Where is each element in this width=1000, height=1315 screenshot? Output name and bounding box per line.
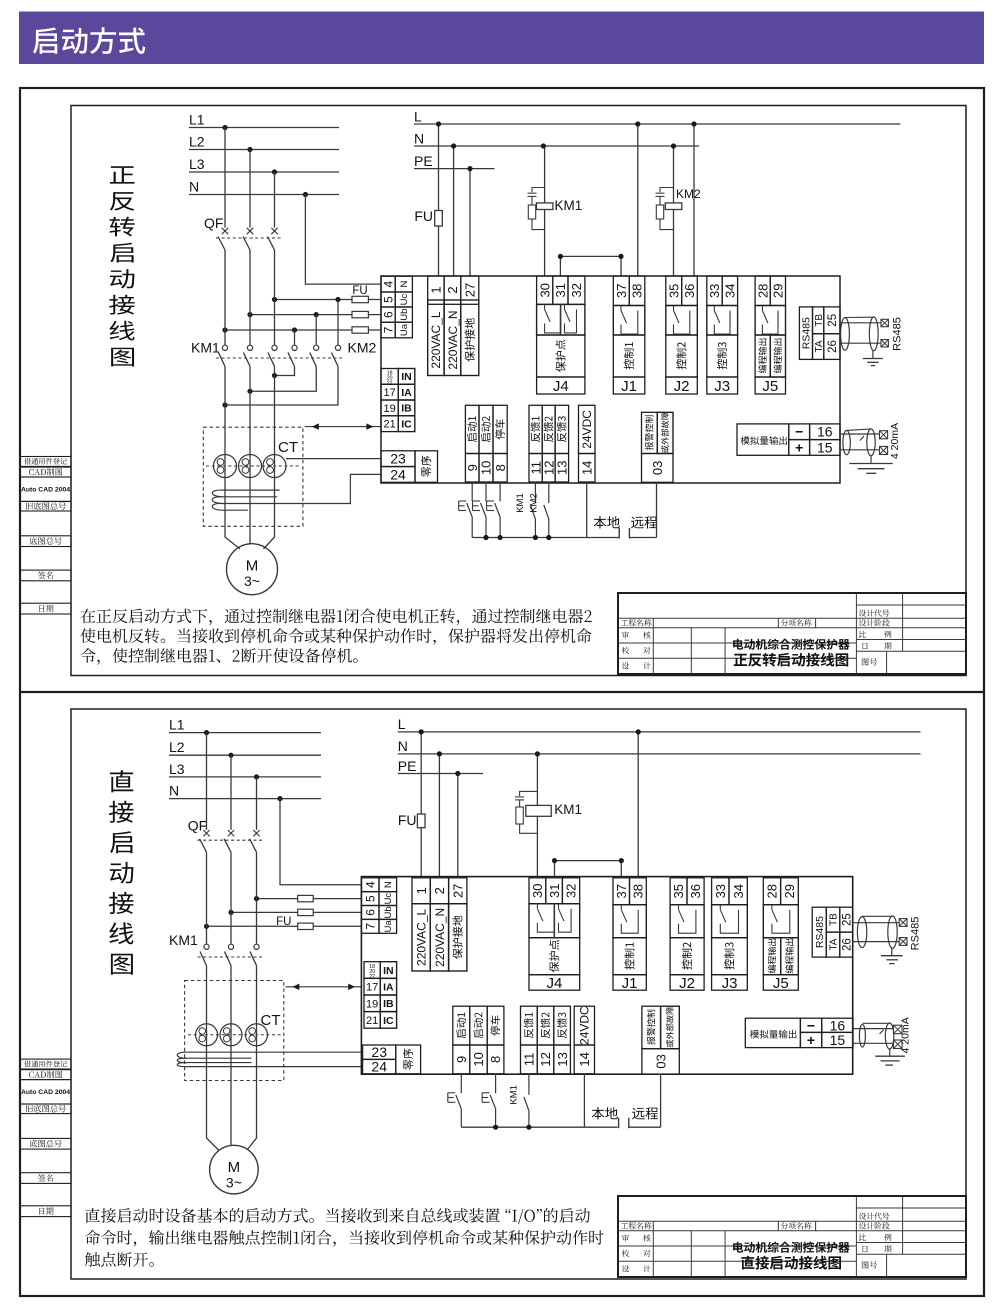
svg-text:L3: L3 [189, 156, 205, 172]
svg-text:J1: J1 [621, 378, 637, 395]
svg-text:29: 29 [771, 284, 786, 298]
svg-text:22: 22 [387, 380, 393, 386]
svg-text:220VAC_N: 220VAC_N [446, 310, 460, 369]
svg-text:L: L [414, 109, 422, 125]
svg-text:35: 35 [671, 884, 686, 898]
svg-text:J2: J2 [674, 378, 690, 395]
svg-text:−: − [807, 1017, 815, 1033]
svg-text:N: N [383, 881, 394, 888]
svg-text:21: 21 [366, 1015, 378, 1027]
svg-text:24VDC: 24VDC [580, 410, 594, 449]
svg-text:L2: L2 [169, 739, 185, 755]
svg-text:12: 12 [538, 1052, 553, 1066]
svg-text:IB: IB [401, 403, 412, 415]
svg-text:KM1: KM1 [515, 493, 526, 513]
svg-text:IA: IA [401, 387, 412, 399]
svg-text:3~: 3~ [226, 1175, 242, 1191]
svg-text:25: 25 [827, 314, 839, 327]
svg-text:15: 15 [830, 1032, 846, 1048]
svg-text:M: M [246, 558, 259, 575]
svg-text:33: 33 [707, 284, 722, 298]
svg-text:L: L [398, 716, 406, 732]
svg-text:24: 24 [390, 466, 406, 482]
svg-text:36: 36 [688, 884, 703, 898]
svg-text:Ub: Ub [383, 906, 394, 918]
svg-text:3~: 3~ [244, 573, 260, 589]
svg-text:QF: QF [204, 215, 223, 231]
svg-text:RS485: RS485 [801, 317, 813, 349]
svg-text:19: 19 [383, 403, 395, 415]
svg-text:Ub: Ub [399, 309, 410, 321]
svg-text:26: 26 [827, 340, 839, 353]
svg-text:KM2: KM2 [348, 340, 377, 356]
svg-text:220VAC_L: 220VAC_L [415, 908, 429, 965]
svg-text:IC: IC [401, 418, 412, 430]
svg-text:1: 1 [429, 286, 444, 293]
svg-text:28: 28 [765, 884, 780, 898]
svg-text:Auto CAD 2004: Auto CAD 2004 [21, 1089, 70, 1096]
svg-text:−: − [795, 424, 803, 440]
svg-text:220VAC_N: 220VAC_N [433, 908, 447, 967]
svg-text:L1: L1 [189, 112, 205, 128]
svg-text:Auto CAD 2004: Auto CAD 2004 [21, 487, 70, 494]
svg-text:34: 34 [723, 284, 738, 298]
svg-text:FU: FU [414, 208, 433, 224]
svg-text:9: 9 [454, 1056, 469, 1063]
svg-text:IN: IN [401, 371, 412, 383]
svg-text:CT: CT [278, 439, 298, 456]
svg-text:J3: J3 [722, 975, 738, 992]
svg-text:PE: PE [414, 153, 433, 169]
svg-text:10: 10 [479, 461, 494, 475]
svg-text:17: 17 [366, 982, 378, 994]
svg-text:6: 6 [364, 909, 378, 916]
svg-text:03: 03 [650, 461, 665, 475]
svg-text:7: 7 [381, 326, 395, 333]
svg-text:+: + [807, 1032, 815, 1048]
svg-text:Uc: Uc [383, 893, 394, 905]
svg-text:IN: IN [383, 965, 394, 977]
svg-text:N: N [398, 738, 408, 754]
svg-text:J3: J3 [714, 378, 730, 395]
svg-text:36: 36 [682, 284, 697, 298]
svg-text:10: 10 [471, 1052, 486, 1066]
svg-text:31: 31 [547, 884, 562, 898]
svg-text:5: 5 [381, 296, 395, 303]
svg-text:IA: IA [383, 982, 394, 994]
svg-text:23: 23 [390, 451, 406, 467]
svg-text:L2: L2 [189, 134, 205, 150]
svg-text:J2: J2 [679, 975, 695, 992]
svg-text:PE: PE [398, 758, 417, 774]
svg-text:24VDC: 24VDC [578, 1006, 592, 1045]
svg-text:19: 19 [366, 998, 378, 1010]
svg-text:FU: FU [398, 812, 417, 828]
svg-text:J5: J5 [762, 378, 778, 395]
svg-text:J4: J4 [546, 975, 562, 992]
svg-text:TB: TB [829, 913, 840, 926]
svg-text:KM2: KM2 [676, 187, 701, 201]
svg-text:RS485: RS485 [892, 317, 904, 351]
svg-text:M: M [228, 1159, 241, 1176]
svg-text:N: N [399, 281, 410, 288]
svg-text:4 20mA: 4 20mA [900, 1017, 912, 1053]
svg-text:KM1: KM1 [555, 198, 583, 213]
svg-text:8: 8 [493, 464, 508, 471]
svg-text:26: 26 [841, 938, 853, 951]
svg-text:Ua: Ua [399, 323, 410, 336]
svg-text:KM1: KM1 [191, 340, 220, 356]
svg-text:RS485: RS485 [814, 916, 826, 948]
svg-text:25: 25 [841, 913, 853, 926]
svg-text:IC: IC [383, 1015, 394, 1027]
svg-text:24: 24 [371, 1059, 387, 1075]
svg-text:IB: IB [383, 998, 394, 1010]
svg-text:29: 29 [782, 884, 797, 898]
svg-text:37: 37 [614, 284, 629, 298]
svg-text:32: 32 [564, 884, 579, 898]
svg-text:L1: L1 [169, 717, 185, 733]
svg-text:13: 13 [555, 461, 570, 475]
svg-text:9: 9 [465, 464, 480, 471]
svg-text:2: 2 [432, 887, 447, 894]
svg-text:14: 14 [577, 1052, 592, 1066]
svg-text:32: 32 [569, 283, 584, 297]
svg-text:Ua: Ua [383, 920, 394, 933]
svg-text:6: 6 [381, 311, 395, 318]
svg-text:2: 2 [445, 286, 460, 293]
svg-text:16: 16 [830, 1017, 846, 1033]
svg-text:TA: TA [829, 938, 840, 950]
svg-text:L3: L3 [169, 761, 185, 777]
svg-text:J5: J5 [773, 975, 789, 992]
svg-text:31: 31 [553, 283, 568, 297]
svg-text:8: 8 [488, 1056, 503, 1063]
svg-text:N: N [414, 131, 424, 147]
svg-text:N: N [189, 179, 199, 195]
svg-text:37: 37 [614, 884, 629, 898]
svg-text:4: 4 [381, 280, 395, 287]
svg-text:38: 38 [631, 884, 646, 898]
svg-text:13: 13 [555, 1052, 570, 1066]
svg-text:KM1: KM1 [169, 932, 198, 948]
svg-text:KM2: KM2 [529, 493, 540, 513]
svg-text:27: 27 [463, 283, 478, 297]
svg-text:33: 33 [713, 884, 728, 898]
svg-text:J4: J4 [553, 378, 569, 395]
svg-text:220VAC_L: 220VAC_L [429, 311, 443, 368]
svg-text:14: 14 [579, 461, 594, 475]
svg-text:15: 15 [817, 440, 833, 456]
svg-text:7: 7 [364, 923, 378, 930]
svg-text:4: 4 [364, 881, 378, 888]
svg-text:Uc: Uc [399, 293, 410, 305]
svg-text:30: 30 [537, 283, 552, 297]
svg-text:RS485: RS485 [910, 917, 922, 951]
svg-text:35: 35 [666, 284, 681, 298]
svg-text:30: 30 [530, 884, 545, 898]
svg-text:17: 17 [383, 387, 395, 399]
svg-text:28: 28 [755, 284, 770, 298]
svg-text:1: 1 [414, 887, 429, 894]
svg-text:03: 03 [653, 1054, 668, 1068]
svg-text:16: 16 [817, 424, 833, 440]
svg-text:+: + [795, 440, 803, 456]
svg-text:4 20mA: 4 20mA [889, 423, 901, 459]
svg-text:5: 5 [364, 895, 378, 902]
svg-text:N: N [169, 783, 179, 799]
svg-text:22: 22 [369, 974, 375, 980]
svg-text:21: 21 [383, 419, 395, 431]
svg-text:38: 38 [630, 284, 645, 298]
svg-text:KM1: KM1 [554, 802, 582, 817]
svg-text:11: 11 [522, 1053, 537, 1067]
svg-text:34: 34 [731, 884, 746, 898]
svg-text:27: 27 [450, 884, 465, 898]
svg-text:FU: FU [352, 285, 367, 297]
svg-text:J1: J1 [622, 975, 638, 992]
svg-text:KM1: KM1 [509, 1085, 520, 1105]
